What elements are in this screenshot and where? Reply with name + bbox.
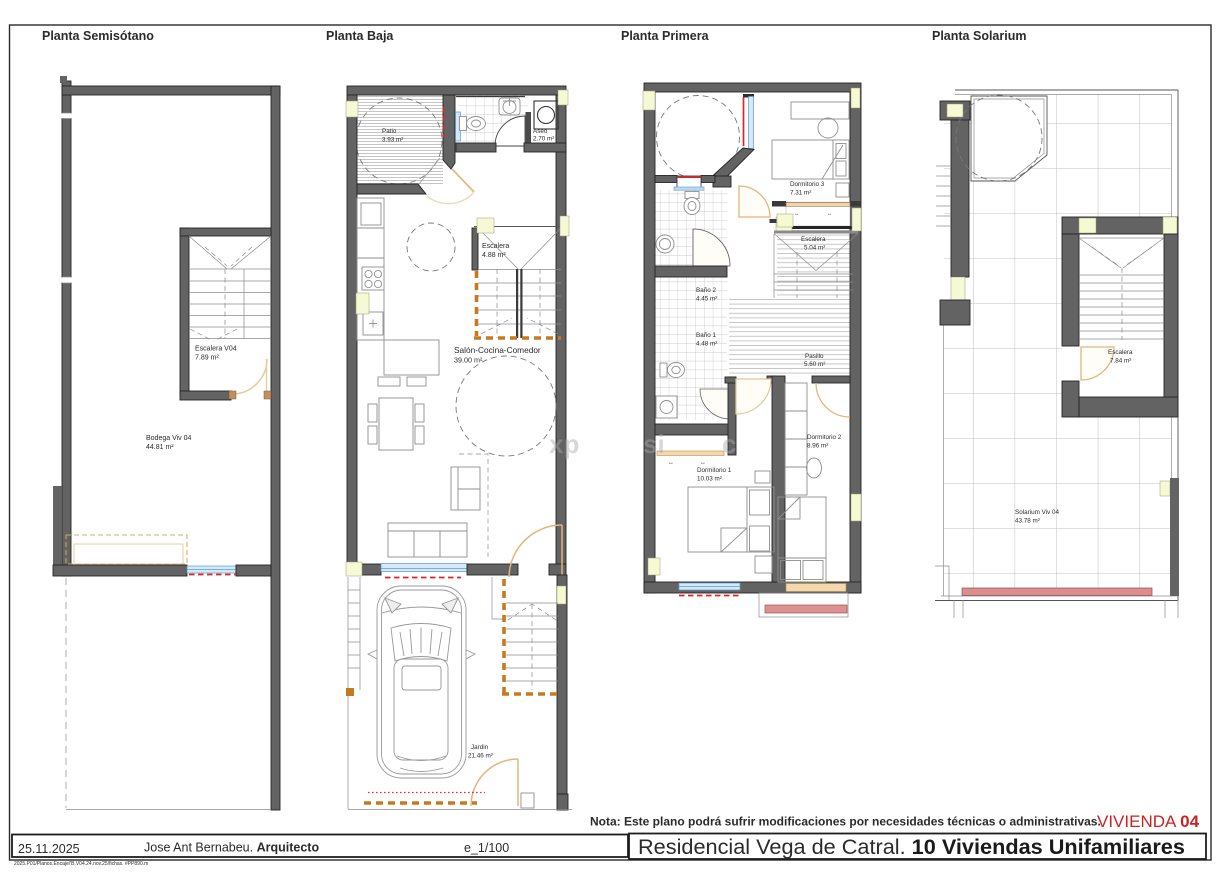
svg-text:Dormitorio 1: Dormitorio 1: [697, 467, 732, 474]
svg-text:Escalera: Escalera: [1108, 349, 1133, 356]
svg-text:21.46 m²: 21.46 m²: [468, 753, 493, 760]
svg-text:↔: ↔: [668, 460, 674, 466]
svg-text:4.48 m²: 4.48 m²: [696, 341, 717, 348]
svg-text:Pasillo: Pasillo: [805, 353, 824, 360]
svg-text:Escalera: Escalera: [801, 236, 826, 243]
svg-text:Planta Baja: Planta Baja: [326, 29, 394, 43]
svg-text:VIVIENDA 04: VIVIENDA 04: [1097, 812, 1200, 831]
svg-text:Escalera: Escalera: [482, 243, 509, 250]
svg-text:Patio: Patio: [382, 128, 397, 135]
svg-text:↔: ↔: [700, 460, 706, 466]
svg-text:44.81 m²: 44.81 m²: [146, 444, 174, 451]
svg-text:Bodega Viv 04: Bodega Viv 04: [146, 435, 192, 442]
svg-text:39.00 m²: 39.00 m²: [454, 356, 483, 365]
svg-text:8.96 m²: 8.96 m²: [807, 443, 828, 450]
svg-text:Jose Ant Bernabeu. Arquitecto: Jose Ant Bernabeu. Arquitecto: [144, 841, 319, 855]
svg-text:Planta Primera: Planta Primera: [621, 29, 710, 43]
svg-text:Escalera V04: Escalera V04: [195, 346, 237, 353]
svg-text:10.03 m²: 10.03 m²: [697, 476, 722, 483]
svg-text:c: c: [722, 429, 736, 459]
svg-text:xp: xp: [549, 429, 579, 459]
svg-text:Nota: Este plano podrá sufrir: Nota: Este plano podrá sufrir modificaci…: [590, 815, 1101, 829]
svg-text:25.11.2025: 25.11.2025: [18, 842, 80, 856]
svg-text:2025.P01/Planos.Encaje/'B.V04.: 2025.P01/Planos.Encaje/'B.V04.24.nov.25/…: [14, 861, 148, 867]
svg-text:↔: ↔: [827, 211, 833, 217]
svg-text:Dormitorio 2: Dormitorio 2: [807, 434, 842, 441]
svg-text:5.60 m²: 5.60 m²: [804, 361, 825, 368]
svg-text:Jardin: Jardin: [471, 744, 489, 751]
svg-text:2.70 m²: 2.70 m²: [533, 136, 554, 143]
svg-text:7.89 m²: 7.89 m²: [195, 355, 219, 362]
svg-text:5.04 m²: 5.04 m²: [804, 245, 825, 252]
svg-text:Planta Semisótano: Planta Semisótano: [42, 29, 154, 43]
svg-text:Baño 2: Baño 2: [696, 287, 716, 294]
svg-text:e_1/100: e_1/100: [464, 841, 509, 855]
svg-text:Baño 1: Baño 1: [696, 332, 716, 339]
svg-text:4.88 m²: 4.88 m²: [482, 252, 506, 259]
svg-text:Dormitorio 3: Dormitorio 3: [790, 181, 825, 188]
svg-text:Planta Solarium: Planta Solarium: [932, 29, 1026, 43]
svg-text:si: si: [643, 429, 665, 459]
svg-text:3.93 m²: 3.93 m²: [382, 137, 403, 144]
svg-text:43.78 m²: 43.78 m²: [1015, 518, 1040, 525]
svg-text:4.45 m²: 4.45 m²: [696, 296, 717, 303]
svg-text:7.31 m²: 7.31 m²: [790, 190, 811, 197]
svg-text:Residencial Vega de Catral. 10: Residencial Vega de Catral. 10 Viviendas…: [638, 834, 1185, 859]
svg-text:Solarium Viv 04: Solarium Viv 04: [1015, 509, 1059, 516]
svg-text:7.84 m²: 7.84 m²: [1110, 358, 1131, 365]
svg-text:Salón-Cocina-Comedor: Salón-Cocina-Comedor: [454, 345, 541, 355]
svg-text:Aseo: Aseo: [533, 128, 548, 135]
svg-text:↔: ↔: [794, 211, 800, 217]
